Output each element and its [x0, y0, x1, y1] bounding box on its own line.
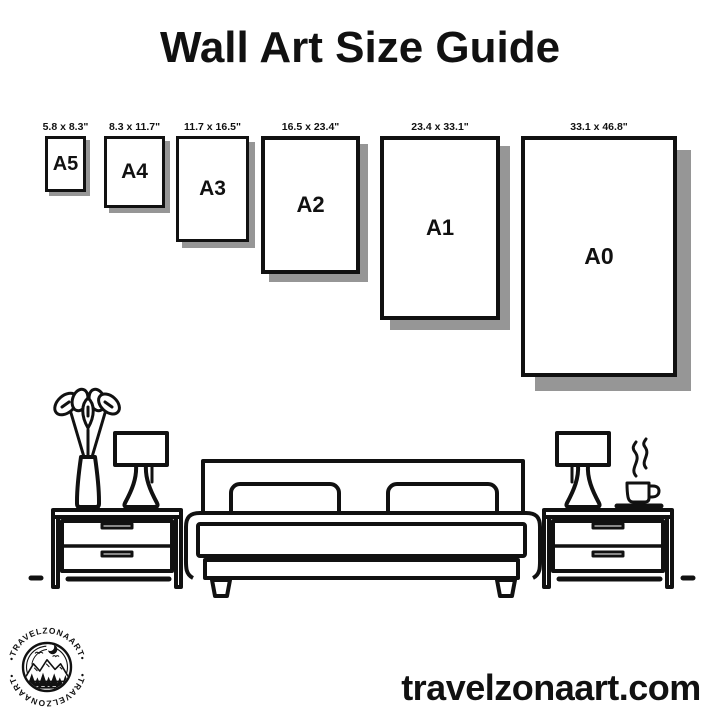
paper-card-a2: 16.5 x 23.4" A2 [261, 122, 360, 274]
coffee-cup-icon [617, 439, 661, 506]
paper-sheet-a0: A0 [521, 136, 677, 377]
bedroom-illustration [0, 378, 720, 610]
paper-card-a0: 33.1 x 46.8" A0 [521, 122, 677, 377]
paper-dimensions-label: 5.8 x 8.3" [43, 122, 89, 133]
bed-leg [497, 580, 515, 596]
nightstand-left-icon [53, 510, 181, 587]
bed-base [205, 560, 518, 578]
nightstand-right-icon [544, 510, 672, 587]
paper-dimensions-label: 8.3 x 11.7" [109, 122, 160, 133]
brand-logo: •TRAVELZONAART• •TRAVELZONAART• [7, 627, 87, 707]
paper-card-a5: 5.8 x 8.3" A5 [45, 122, 86, 192]
paper-name-label: A5 [53, 153, 79, 176]
page-title: Wall Art Size Guide [0, 26, 720, 70]
paper-sheet-a1: A1 [380, 136, 500, 320]
paper-dimensions-label: 16.5 x 23.4" [282, 122, 340, 133]
paper-sheet-a2: A2 [261, 136, 360, 274]
table-lamp-left-icon [115, 433, 167, 507]
paper-sheet-a5: A5 [45, 136, 86, 192]
bed-icon [186, 461, 540, 596]
steam [633, 442, 637, 476]
plant-vase-icon [51, 387, 124, 507]
bed-leg [212, 580, 230, 596]
paper-name-label: A2 [296, 192, 324, 218]
drawer-handle [102, 552, 132, 556]
steam [644, 439, 647, 468]
paper-sheet-a4: A4 [104, 136, 165, 208]
paper-name-label: A3 [199, 177, 226, 201]
paper-card-a4: 8.3 x 11.7" A4 [104, 122, 165, 208]
paper-name-label: A0 [584, 243, 613, 270]
website-url: travelzonaart.com [398, 668, 704, 708]
vase [77, 457, 99, 507]
paper-name-label: A1 [426, 215, 454, 241]
paper-card-a1: 23.4 x 33.1" A1 [380, 122, 500, 320]
paper-card-a3: 11.7 x 16.5" A3 [176, 122, 249, 242]
paper-dimensions-label: 11.7 x 16.5" [184, 122, 241, 133]
table-lamp-right-icon [557, 433, 609, 507]
paper-sheet-a3: A3 [176, 136, 249, 242]
wall-art-size-guide-poster: Wall Art Size Guide 5.8 x 8.3" A5 8.3 x … [0, 0, 720, 720]
mattress [198, 524, 525, 556]
paper-dimensions-label: 33.1 x 46.8" [570, 122, 628, 133]
paper-name-label: A4 [121, 160, 148, 184]
drawer-handle [102, 524, 132, 528]
lamp-shade [115, 433, 167, 465]
paper-dimensions-label: 23.4 x 33.1" [411, 122, 469, 133]
